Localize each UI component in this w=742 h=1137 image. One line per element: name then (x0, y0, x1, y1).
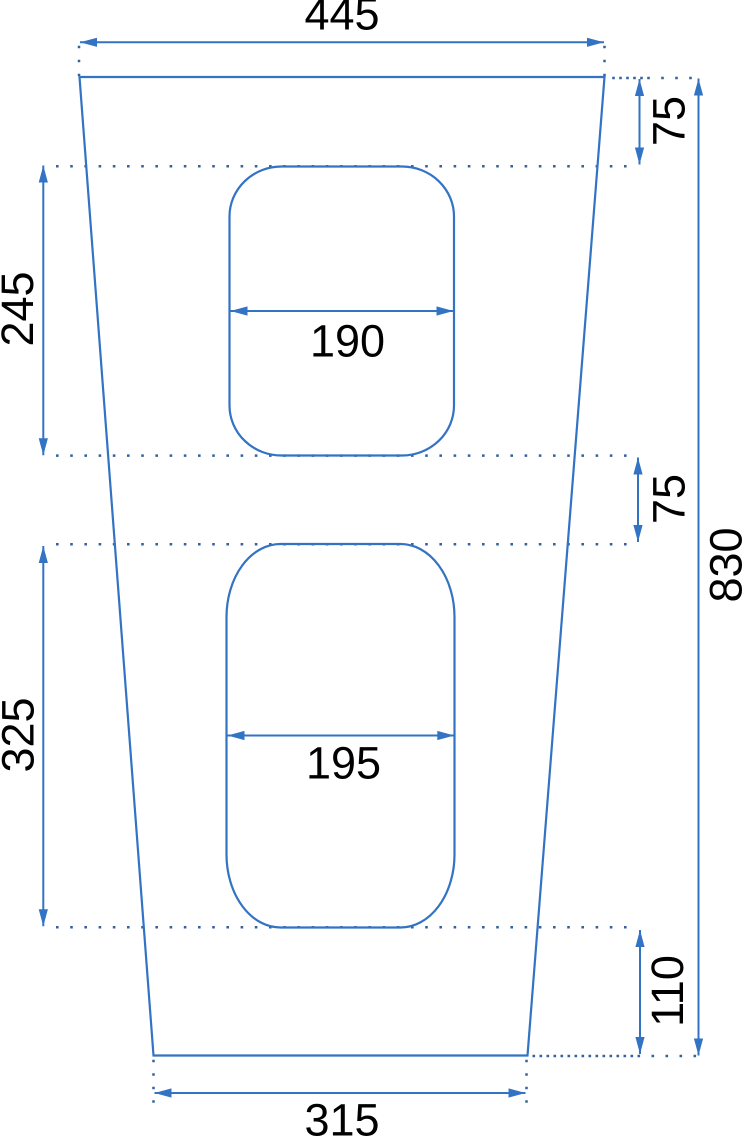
svg-text:75: 75 (644, 96, 695, 146)
svg-text:325: 325 (0, 697, 44, 772)
svg-text:190: 190 (310, 316, 385, 367)
svg-text:445: 445 (304, 0, 379, 40)
svg-text:315: 315 (304, 1095, 379, 1137)
svg-text:245: 245 (0, 271, 43, 346)
svg-text:110: 110 (642, 955, 693, 1027)
svg-text:75: 75 (644, 474, 695, 524)
svg-text:195: 195 (306, 737, 381, 788)
svg-text:830: 830 (701, 527, 742, 602)
